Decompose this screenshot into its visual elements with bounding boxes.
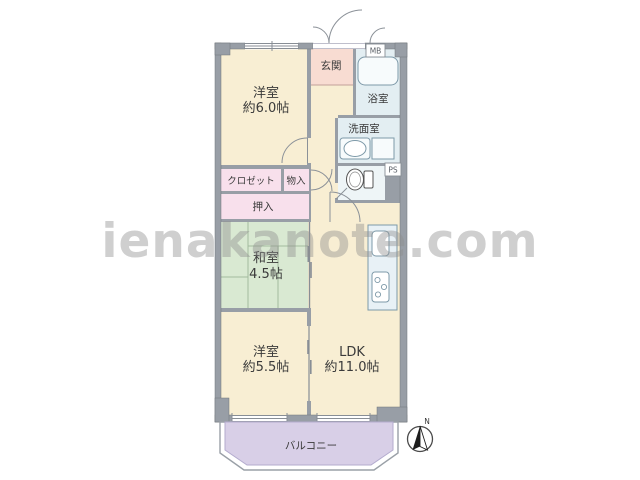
entrance-opening — [313, 43, 365, 49]
label-western-room-6-size: 約6.0帖 — [243, 101, 290, 116]
label-ldk-size: 約11.0帖 — [325, 360, 380, 375]
label-storage: 物入 — [286, 175, 306, 187]
stove-icon — [372, 272, 389, 302]
label-entrance: 玄関 — [321, 59, 342, 72]
label-japanese-room-size: 4.5帖 — [249, 267, 283, 282]
entrance-door-main-arc — [329, 10, 362, 43]
toilet-icon — [347, 169, 374, 190]
label-meter-box: MB — [370, 47, 382, 56]
window-top — [245, 41, 298, 51]
compass-north-label: N — [424, 417, 430, 426]
bathtub-icon — [358, 57, 398, 85]
watermark-text: ienakanote.com — [101, 214, 538, 269]
entrance-door-small-arc — [313, 27, 329, 43]
label-oshiire: 押入 — [253, 200, 274, 213]
washing-machine-icon — [372, 138, 394, 159]
label-western-room-55-name: 洋室 — [253, 344, 279, 360]
label-western-room-6-name: 洋室 — [253, 85, 279, 101]
compass-icon: N — [408, 417, 433, 452]
label-washroom: 洗面室 — [348, 122, 380, 135]
label-closet: クロゼット — [227, 175, 275, 187]
label-ldk-name: LDK — [339, 345, 365, 360]
washbasin-icon — [340, 138, 370, 159]
toilet-door-gap — [335, 183, 338, 198]
label-pipe-space: PS — [388, 166, 398, 175]
floorplan-svg: N 洋室 約6.0帖 玄関 浴室 洗面室 MB PS クロゼット 物入 押入 和… — [0, 0, 640, 480]
meter-box-door-arc — [370, 28, 385, 43]
label-balcony: バルコニー — [285, 440, 337, 452]
label-bathroom: 浴室 — [368, 92, 389, 105]
floorplan-image: N 洋室 約6.0帖 玄関 浴室 洗面室 MB PS クロゼット 物入 押入 和… — [0, 0, 640, 480]
label-western-room-55-size: 約5.5帖 — [243, 360, 290, 375]
